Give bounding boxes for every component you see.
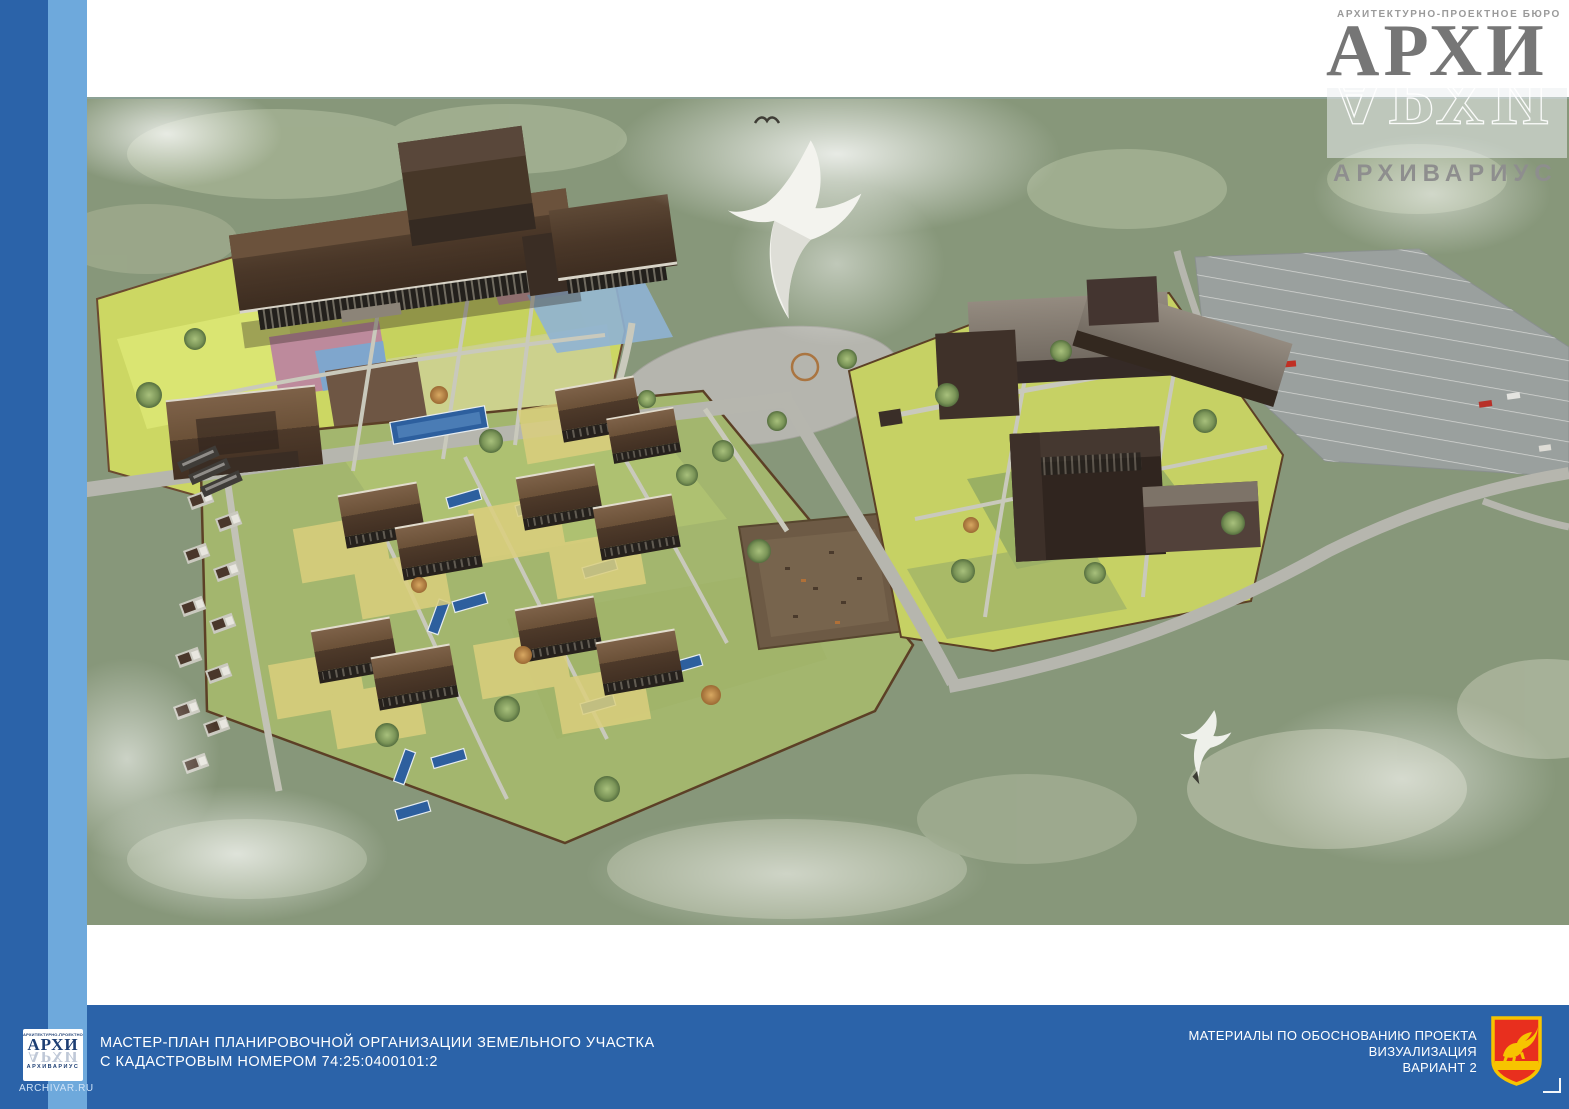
left-stripe-light [48,0,87,1109]
footer-archivarius-label: АРХИВАРИУС [23,1064,83,1070]
sheet-title-line1: МАСТЕР-ПЛАН ПЛАНИРОВОЧНОЙ ОРГАНИЗАЦИИ ЗЕ… [100,1034,655,1053]
seagull-large-icon [720,135,864,323]
footer-archi-logo: АРХИ [23,1037,83,1052]
archi-logo-reflection-box: АРХИ [1327,88,1567,158]
archivarius-wordmark: АРХИВАРИУС [1333,160,1558,188]
bird-silhouette-icon [755,117,779,123]
footer-corner-mark [1543,1078,1561,1093]
materials-line3: ВАРИАНТ 2 [1188,1060,1477,1076]
birds-layer [87,99,1569,925]
footer-archi-logo-reflection: АРХИ [23,1052,83,1063]
archi-logo-reflection: АРХИ [1331,88,1553,136]
sheet-title: МАСТЕР-ПЛАН ПЛАНИРОВОЧНОЙ ОРГАНИЗАЦИИ ЗЕ… [100,1034,655,1072]
materials-line1: МАТЕРИАЛЫ ПО ОБОСНОВАНИЮ ПРОЕКТА [1188,1028,1477,1044]
left-stripe-dark [0,0,48,1109]
archi-logo-wordmark: АРХИ [1326,14,1548,88]
seagull-small-icon [1172,705,1235,788]
sheet-title-line2: С КАДАСТРОВЫМ НОМЕРОМ 74:25:0400101:2 [100,1053,655,1072]
presentation-board: { "header": { "bureau_line": "АРХИТЕКТУР… [0,0,1569,1109]
archivar-url: ARCHIVAR.RU [19,1083,94,1094]
materials-line2: ВИЗУАЛИЗАЦИЯ [1188,1044,1477,1060]
materials-block: МАТЕРИАЛЫ ПО ОБОСНОВАНИЮ ПРОЕКТА ВИЗУАЛИ… [1188,1028,1477,1076]
masterplan-render [87,97,1569,925]
city-coat-of-arms [1489,1016,1544,1086]
footer-logo-box: АРХИТЕКТУРНО-ПРОЕКТНОЕ БЮРО АРХИ АРХИ АР… [23,1029,83,1081]
